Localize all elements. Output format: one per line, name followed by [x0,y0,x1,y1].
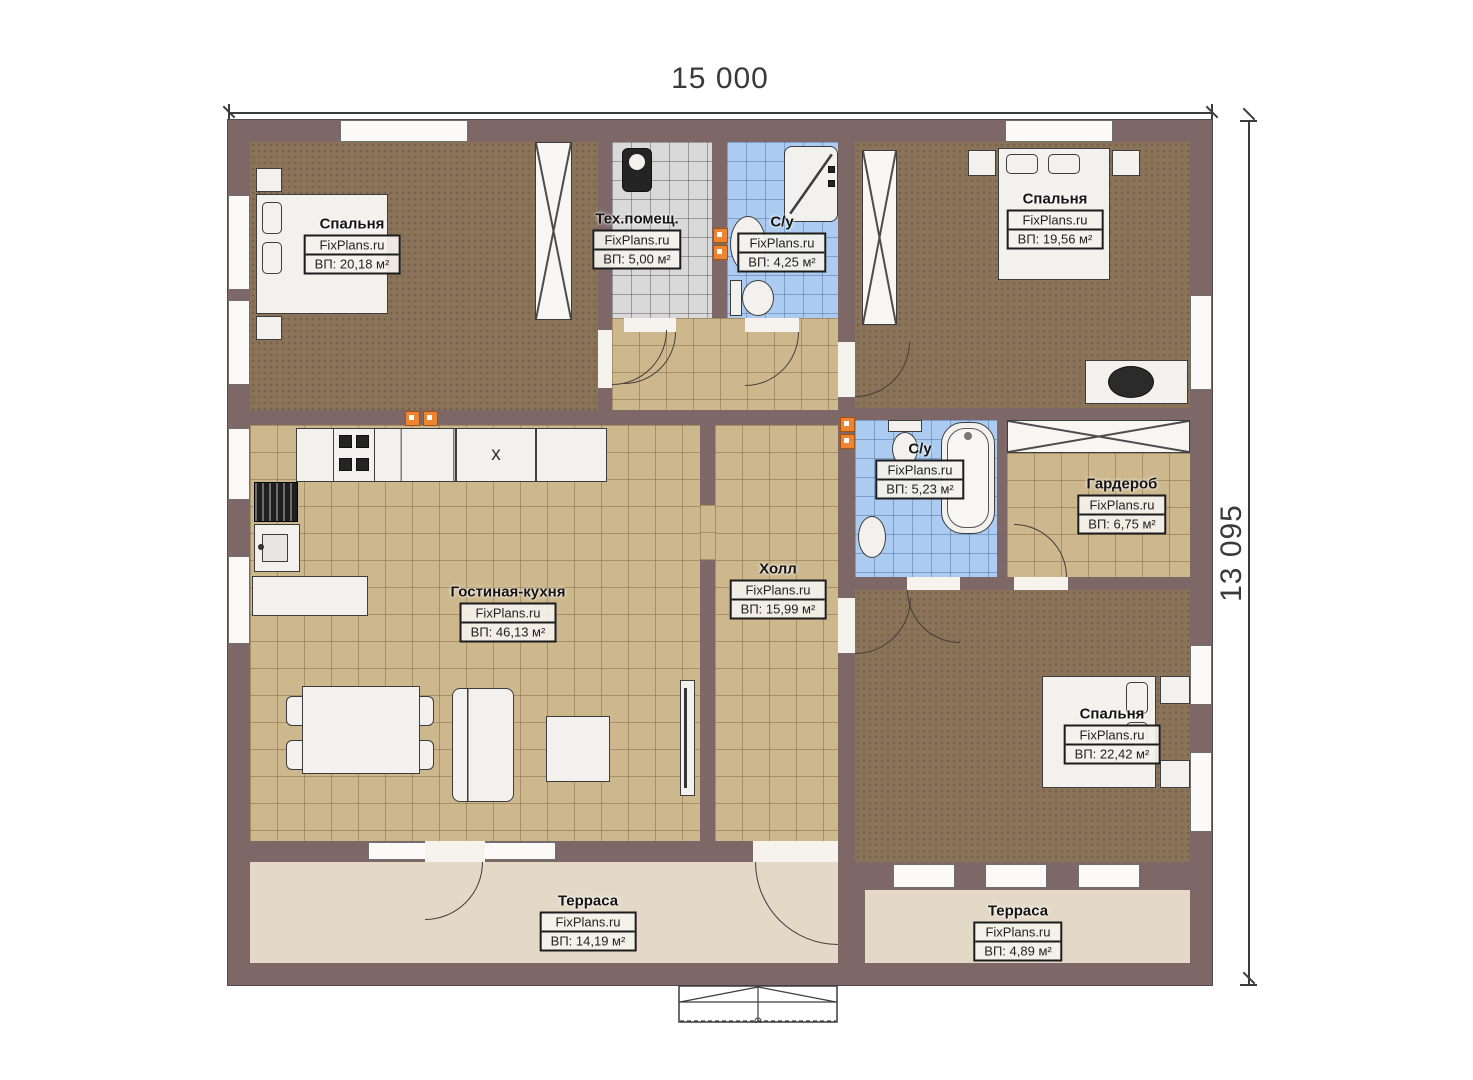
dimension-end-mark [1240,120,1257,122]
socket-icon [840,417,855,432]
stove-burner [356,435,369,448]
room-area: ВП: 4,89 м² [975,943,1060,960]
shower-fitting [828,166,835,173]
room-floor-hall-lower [715,425,838,841]
kitchen-sink-basin [262,534,288,562]
room-area: ВП: 19,56 м² [1009,231,1102,248]
room-area: ВП: 15,99 м² [732,601,825,618]
kitchen-counter [296,428,456,482]
door-opening-entrance [753,841,838,862]
room-name: Тех.помещ. [595,211,678,228]
room-info-box: FixPlans.ru ВП: 6,75 м² [1077,495,1166,535]
room-area: ВП: 20,18 м² [306,256,399,273]
room-name: С/у [770,214,793,231]
room-name: Спальня [1023,191,1088,208]
watermark: FixPlans.ru [542,914,635,933]
room-name: Холл [759,561,797,578]
room-info-box: FixPlans.ru ВП: 5,00 м² [592,230,681,270]
watermark: FixPlans.ru [462,605,555,624]
socket-icon [713,228,728,243]
dimension-height-label: 13 095 [1215,483,1249,623]
room-name: Спальня [1080,706,1145,723]
closet-icon [535,142,572,320]
room-name: Терраса [558,893,618,910]
room-label-bedroom-top-right: Спальня FixPlans.ru ВП: 19,56 м² [1007,191,1104,250]
watermark: FixPlans.ru [306,237,399,256]
pillow [1006,154,1038,174]
dining-table [302,686,420,774]
socket-icon [713,245,728,260]
door-opening-bathroom-top [745,318,799,332]
window [228,556,250,644]
door-opening-bedroom-top-right [838,342,855,397]
window [228,428,250,500]
tv-screen [684,688,687,788]
watermark: FixPlans.ru [877,462,962,481]
room-info-box: FixPlans.ru ВП: 14,19 м² [540,912,637,952]
nightstand [256,316,282,340]
room-label-terrace-right: Терраса FixPlans.ru ВП: 4,89 м² [973,903,1062,962]
dimension-end-mark [1240,984,1257,986]
sofa [452,688,514,802]
door-opening-bathroom-middle [907,577,960,590]
faucet-icon [258,544,264,550]
window [1190,645,1212,705]
nightstand [1112,150,1140,176]
window [228,300,250,385]
room-info-box: FixPlans.ru ВП: 15,99 м² [730,580,827,620]
room-info-box: FixPlans.ru ВП: 20,18 м² [304,235,401,275]
room-area: ВП: 46,13 м² [462,624,555,641]
window [1005,120,1113,142]
floor-plan-page: 15 000 13 095 [0,0,1473,1080]
room-area: ВП: 6,75 м² [1079,516,1164,533]
door-opening-living-terrace [425,841,485,862]
kitchen-appliance: x [456,428,536,482]
room-area: ВП: 22,42 м² [1066,746,1159,763]
room-area: ВП: 4,25 м² [739,254,824,271]
room-name: С/у [908,441,931,458]
nightstand [256,168,282,192]
window [1190,295,1212,390]
window [893,864,955,888]
bathtub-drain [964,432,972,440]
room-area: ВП: 5,23 м² [877,481,962,498]
pillow [262,202,282,234]
toilet-tank [888,420,922,432]
toilet-icon [742,280,774,316]
window [1078,864,1140,888]
closet-icon [862,150,897,325]
tv-icon [680,680,695,796]
door-opening-bedroom-top-left [598,330,612,388]
room-label-bedroom-bottom-right: Спальня FixPlans.ru ВП: 22,42 м² [1064,706,1161,765]
office-chair-icon [1108,366,1154,398]
room-label-terrace-left: Терраса FixPlans.ru ВП: 14,19 м² [540,893,637,952]
room-label-bathroom-top: С/у FixPlans.ru ВП: 4,25 м² [737,214,826,273]
room-label-hall: Холл FixPlans.ru ВП: 15,99 м² [730,561,827,620]
watermark: FixPlans.ru [1079,497,1164,516]
socket-icon [405,411,420,426]
watermark: FixPlans.ru [975,924,1060,943]
dimension-width-line [228,112,1212,114]
room-info-box: FixPlans.ru ВП: 4,25 м² [737,233,826,273]
passage-living-hall [700,505,715,560]
kitchen-island [252,576,368,616]
coffee-table [546,716,610,782]
window [1190,752,1212,832]
entrance-steps-icon [678,985,838,1023]
room-name: Спальня [320,216,385,233]
nightstand [1160,676,1190,704]
nightstand [968,150,996,176]
fridge-icon [254,482,298,522]
socket-icon [840,434,855,449]
window [228,195,250,290]
room-info-box: FixPlans.ru ВП: 46,13 м² [460,603,557,643]
toilet-tank [730,280,742,316]
watermark: FixPlans.ru [732,582,825,601]
room-info-box: FixPlans.ru ВП: 22,42 м² [1064,725,1161,765]
pillow [262,242,282,274]
socket-icon [423,411,438,426]
stove-burner [339,458,352,471]
shower-fitting [828,180,835,187]
boiler-dial [629,154,645,170]
dimension-width-label: 15 000 [570,62,870,96]
door-opening-wardrobe [1014,577,1068,590]
pillow [1048,154,1080,174]
floor-plan: x Спал [228,120,1212,985]
room-name: Гардероб [1087,476,1158,493]
window [340,120,468,142]
door-opening-bedroom-bottom-right [838,598,855,653]
dimension-tick [1243,108,1256,121]
stove-burner [356,458,369,471]
room-area: ВП: 14,19 м² [542,933,635,950]
room-info-box: FixPlans.ru ВП: 19,56 м² [1007,210,1104,250]
sink-icon [858,516,886,558]
watermark: FixPlans.ru [1066,727,1159,746]
room-name: Терраса [988,903,1048,920]
wardrobe-unit-icon [1007,420,1190,453]
watermark: FixPlans.ru [739,235,824,254]
room-info-box: FixPlans.ru ВП: 4,89 м² [973,922,1062,962]
room-label-bathroom-middle: С/у FixPlans.ru ВП: 5,23 м² [875,441,964,500]
kitchen-cabinet [536,428,607,482]
stove-burner [339,435,352,448]
window [985,864,1047,888]
room-label-bedroom-top-left: Спальня FixPlans.ru ВП: 20,18 м² [304,216,401,275]
nightstand [1160,760,1190,788]
room-label-wardrobe: Гардероб FixPlans.ru ВП: 6,75 м² [1077,476,1166,535]
dimension-height-line [1248,120,1250,985]
room-label-living-kitchen: Гостиная-кухня FixPlans.ru ВП: 46,13 м² [451,584,566,643]
room-info-box: FixPlans.ru ВП: 5,23 м² [875,460,964,500]
watermark: FixPlans.ru [594,232,679,251]
room-label-tech: Тех.помещ. FixPlans.ru ВП: 5,00 м² [592,211,681,270]
watermark: FixPlans.ru [1009,212,1102,231]
room-area: ВП: 5,00 м² [594,251,679,268]
room-name: Гостиная-кухня [451,584,566,601]
